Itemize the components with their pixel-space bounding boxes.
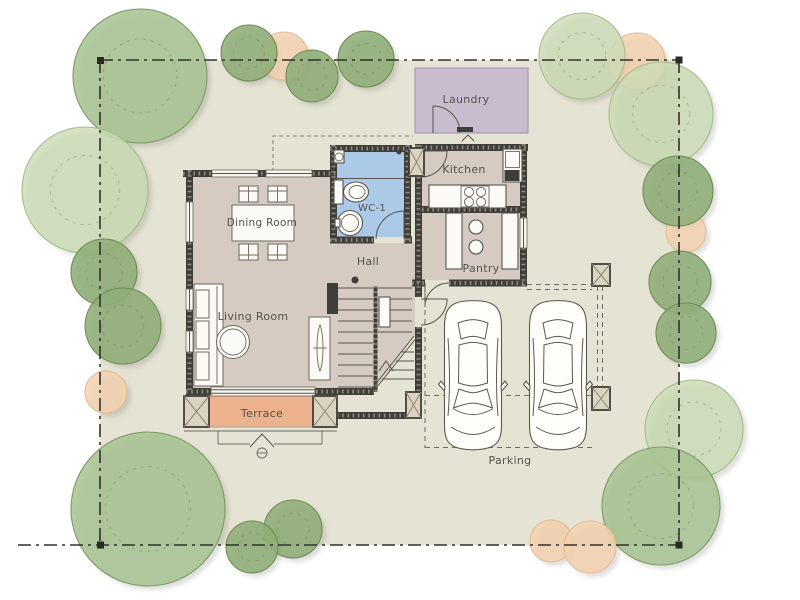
label-wc1: WC-1 (358, 203, 386, 214)
living-stairs-wall-stub (327, 283, 338, 314)
tree-icon (71, 432, 225, 586)
pantry-shelf-left (446, 213, 462, 269)
label-laundry: Laundry (443, 93, 490, 106)
tree-icon (286, 50, 338, 102)
sofa-cushion (196, 321, 209, 349)
boundary-corner-marker (676, 542, 683, 549)
label-hall: Hall (357, 255, 379, 268)
shrub-icon (85, 371, 127, 413)
tree-icon (656, 303, 716, 363)
pantry-stool-icon (469, 240, 483, 254)
boundary-corner-marker (676, 57, 683, 64)
car-1 (439, 301, 508, 450)
dining-chair (268, 186, 287, 202)
site-plan-canvas: Laundry Kitchen WC-1 Dining Room Hall Pa… (0, 0, 800, 600)
tree-icon (85, 288, 161, 364)
stair-newel-dot (352, 277, 359, 284)
label-pantry: Pantry (463, 262, 500, 275)
pantry-shelf-right (502, 213, 518, 269)
tree-icon (609, 62, 713, 166)
tree-icon (22, 127, 148, 253)
coffee-table (217, 326, 250, 359)
tree-icon (338, 31, 394, 87)
boundary-corner-marker (97, 57, 104, 64)
terrace-sliding-door (211, 387, 315, 396)
tree-icon (643, 156, 713, 226)
sofa-cushion (196, 352, 209, 380)
sofa-cushion (196, 290, 209, 318)
tree-icon (539, 13, 625, 99)
tree-icon (73, 9, 207, 143)
pantry-stool-icon (469, 220, 483, 234)
label-kitchen: Kitchen (442, 163, 485, 176)
boundary-corner-marker (97, 542, 104, 549)
toilet-tank-icon (334, 180, 343, 204)
label-dining-room: Dining Room (227, 217, 297, 229)
car-2 (524, 301, 593, 450)
label-living-room: Living Room (218, 310, 289, 323)
dining-chair (239, 186, 258, 202)
label-parking: Parking (489, 454, 532, 467)
tree-icon (221, 25, 277, 81)
tree-icon (226, 521, 278, 573)
label-terrace: Terrace (240, 407, 283, 420)
stair-landing-marker (379, 297, 390, 327)
dining-chair (268, 244, 287, 260)
tree-icon (602, 447, 720, 565)
dining-chair (239, 244, 258, 260)
shrub-icon (564, 521, 616, 573)
floor-plan-svg: Laundry Kitchen WC-1 Dining Room Hall Pa… (0, 0, 800, 600)
